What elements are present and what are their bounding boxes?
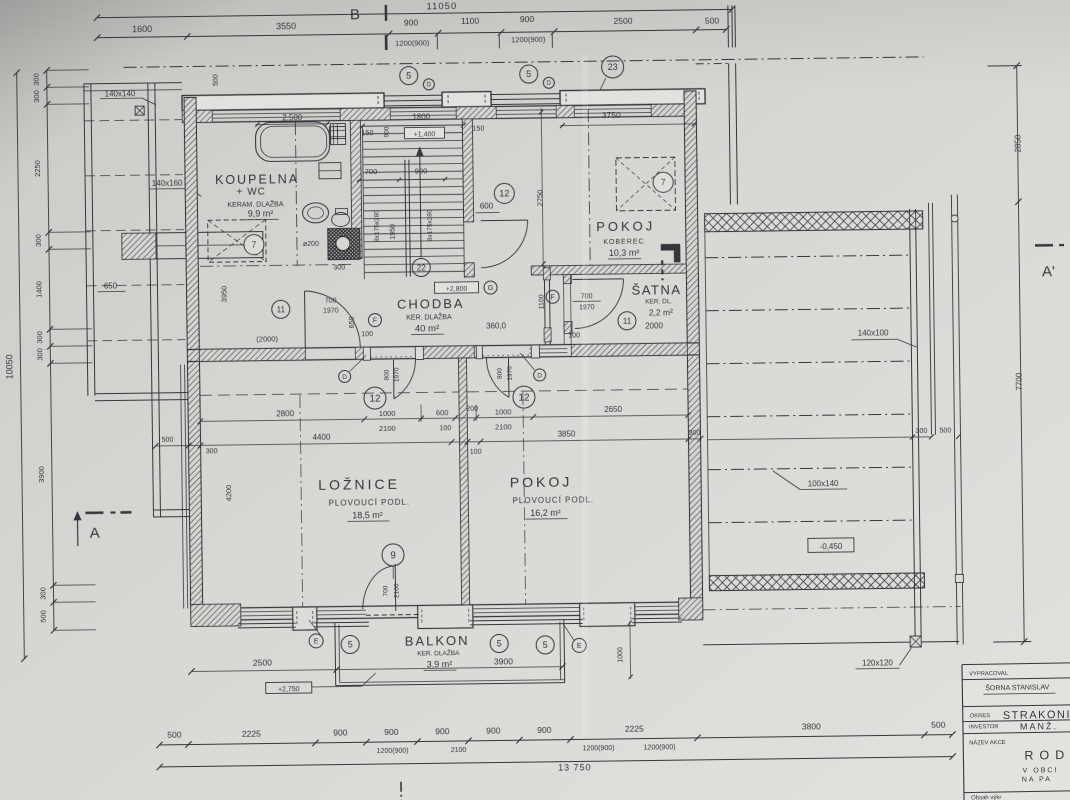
svg-text:500: 500	[162, 437, 174, 444]
svg-text:900: 900	[384, 727, 399, 737]
svg-text:+1,400: +1,400	[414, 131, 436, 138]
svg-text:16,2 m²: 16,2 m²	[530, 508, 561, 518]
svg-text:1100: 1100	[539, 294, 546, 309]
svg-text:11: 11	[623, 317, 632, 326]
svg-text:100: 100	[361, 331, 373, 338]
svg-text:300: 300	[689, 430, 701, 437]
svg-text:140x100: 140x100	[858, 328, 889, 337]
svg-text:STRAKONI: STRAKONI	[1003, 709, 1070, 722]
svg-text:9,9 m²: 9,9 m²	[248, 208, 274, 218]
svg-text:2850: 2850	[1014, 134, 1023, 152]
svg-text:22: 22	[417, 263, 427, 272]
svg-text:NA PA: NA PA	[1022, 776, 1052, 783]
svg-text:+2,800: +2,800	[446, 286, 468, 293]
svg-text:7: 7	[251, 240, 256, 250]
svg-text:KOBEREC: KOBEREC	[603, 239, 644, 247]
svg-text:2800: 2800	[276, 409, 294, 418]
svg-text:7: 7	[661, 178, 666, 188]
svg-text:B: B	[350, 6, 360, 23]
svg-text:1000: 1000	[379, 409, 396, 418]
svg-text:2225: 2225	[625, 724, 644, 734]
svg-text:700: 700	[325, 298, 337, 305]
svg-text:7700: 7700	[1015, 372, 1024, 390]
svg-text:NÁZEV AKCE: NÁZEV AKCE	[969, 739, 1006, 747]
svg-text:LOŽNICE: LOŽNICE	[318, 476, 400, 493]
svg-text:2,500: 2,500	[282, 113, 303, 122]
svg-text:500: 500	[213, 74, 220, 86]
svg-text:1970: 1970	[323, 308, 339, 315]
svg-text:11: 11	[277, 305, 286, 314]
svg-text:40 m²: 40 m²	[415, 323, 439, 334]
svg-text:4200: 4200	[224, 485, 233, 502]
svg-text:2100: 2100	[393, 583, 400, 598]
svg-text:300: 300	[35, 348, 44, 361]
svg-text:100: 100	[568, 332, 580, 339]
svg-text:3850: 3850	[557, 429, 575, 438]
svg-text:900: 900	[537, 725, 552, 735]
svg-text:2650: 2650	[604, 405, 622, 414]
svg-text:650: 650	[104, 281, 118, 290]
svg-text:900: 900	[520, 14, 535, 24]
svg-text:KOUPELNA: KOUPELNA	[215, 172, 299, 187]
svg-text:140x160: 140x160	[152, 179, 183, 188]
svg-text:100: 100	[470, 449, 482, 456]
svg-text:300: 300	[206, 448, 218, 455]
svg-text:V OBCI: V OBCI	[1023, 767, 1059, 775]
svg-text:MANŽ.: MANŽ.	[1020, 721, 1058, 732]
svg-text:G: G	[488, 285, 494, 292]
svg-text:1200(900): 1200(900)	[644, 744, 676, 751]
svg-text:5: 5	[406, 71, 411, 81]
svg-text:650: 650	[349, 316, 356, 328]
svg-text:2500: 2500	[253, 657, 272, 667]
svg-text:2750: 2750	[535, 190, 544, 207]
svg-text:Obsah výkr: Obsah výkr	[971, 795, 1001, 800]
svg-text:D: D	[537, 372, 542, 379]
svg-text:ŠATNA: ŠATNA	[632, 282, 682, 298]
svg-text:2250: 2250	[33, 160, 42, 177]
svg-text:500: 500	[39, 610, 48, 623]
svg-text:+2,750: +2,750	[278, 686, 300, 693]
svg-text:PLOVOUCÍ PODL.: PLOVOUCÍ PODL.	[512, 495, 594, 505]
svg-text:120x120: 120x120	[862, 658, 893, 667]
svg-text:3550: 3550	[276, 21, 296, 31]
svg-text:700: 700	[382, 585, 389, 596]
svg-text:700: 700	[365, 167, 378, 176]
svg-text:500: 500	[705, 16, 720, 26]
svg-text:F: F	[550, 294, 554, 301]
svg-text:1200(900): 1200(900)	[583, 745, 615, 752]
svg-text:1950: 1950	[390, 224, 397, 240]
svg-text:600: 600	[480, 202, 494, 211]
svg-text:ROD: ROD	[1024, 748, 1070, 763]
svg-text:ø200: ø200	[303, 241, 319, 248]
svg-text:1200(900): 1200(900)	[511, 35, 546, 44]
svg-text:5: 5	[348, 640, 353, 650]
svg-text:18,5 m²: 18,5 m²	[352, 510, 383, 520]
svg-text:300: 300	[32, 90, 41, 103]
svg-text:900: 900	[435, 726, 450, 736]
svg-text:F: F	[373, 318, 377, 325]
svg-text:900: 900	[415, 166, 428, 175]
svg-text:BALKON: BALKON	[405, 633, 470, 649]
svg-text:D: D	[427, 82, 432, 88]
svg-text:300: 300	[35, 331, 44, 344]
svg-text:800: 800	[497, 368, 504, 379]
svg-text:3900: 3900	[494, 656, 513, 666]
svg-text:3800: 3800	[802, 721, 821, 731]
svg-text:150: 150	[362, 130, 374, 137]
svg-text:INVESTOR: INVESTOR	[969, 724, 999, 730]
svg-text:800: 800	[384, 369, 391, 380]
svg-text:1200(900): 1200(900)	[377, 748, 409, 755]
svg-text:A: A	[90, 525, 100, 542]
svg-text:1000: 1000	[495, 407, 512, 416]
svg-text:13 750: 13 750	[558, 762, 592, 772]
svg-text:200: 200	[466, 406, 478, 413]
svg-text:10,3 m²: 10,3 m²	[609, 248, 640, 258]
svg-text:900: 900	[383, 126, 390, 137]
svg-text:OKRES: OKRES	[970, 713, 991, 719]
svg-text:5: 5	[543, 640, 548, 650]
svg-text:500: 500	[931, 720, 946, 730]
svg-text:23: 23	[608, 62, 618, 72]
svg-text:140x140: 140x140	[105, 89, 136, 98]
svg-text:300: 300	[916, 428, 928, 435]
svg-text:360,0: 360,0	[486, 321, 507, 330]
svg-text:D: D	[342, 374, 347, 381]
svg-text:1800: 1800	[412, 112, 430, 121]
svg-text:3750: 3750	[602, 110, 621, 120]
svg-text:300: 300	[333, 264, 345, 271]
svg-text:100: 100	[439, 425, 451, 432]
svg-text:POKOJ: POKOJ	[510, 474, 573, 491]
svg-text:8x175x280: 8x175x280	[426, 209, 433, 241]
svg-text:5: 5	[497, 639, 502, 649]
svg-text:3950: 3950	[219, 286, 228, 303]
svg-text:2,2 m²: 2,2 m²	[649, 307, 673, 317]
svg-text:9: 9	[390, 550, 396, 561]
svg-text:8x175x280: 8x175x280	[373, 210, 380, 242]
svg-text:POKOJ: POKOJ	[596, 218, 655, 234]
svg-text:A': A'	[1042, 263, 1055, 280]
svg-text:1100: 1100	[461, 16, 480, 26]
svg-text:10050: 10050	[4, 354, 14, 379]
svg-text:1970: 1970	[394, 367, 401, 382]
svg-text:5: 5	[526, 69, 531, 79]
svg-text:E: E	[314, 638, 319, 645]
svg-text:E: E	[577, 643, 582, 650]
svg-text:1970: 1970	[507, 366, 514, 381]
svg-text:11050: 11050	[426, 1, 457, 12]
svg-text:12: 12	[369, 394, 381, 405]
svg-text:500: 500	[167, 730, 182, 740]
svg-text:500: 500	[940, 428, 952, 435]
svg-text:2000: 2000	[645, 321, 663, 330]
svg-text:2225: 2225	[242, 729, 261, 739]
svg-text:1600: 1600	[132, 24, 152, 34]
svg-text:12: 12	[518, 393, 530, 404]
svg-text:900: 900	[404, 17, 419, 27]
svg-text:12: 12	[499, 189, 509, 199]
svg-text:4400: 4400	[313, 433, 331, 442]
svg-text:VYPRACOVAL: VYPRACOVAL	[969, 671, 1009, 678]
svg-text:300: 300	[32, 73, 41, 86]
svg-text:2100: 2100	[495, 422, 512, 431]
svg-text:2100: 2100	[451, 747, 467, 754]
svg-text:900: 900	[486, 725, 501, 735]
svg-text:600: 600	[436, 408, 449, 417]
svg-text:CHODBA: CHODBA	[397, 296, 465, 312]
svg-text:1200(900): 1200(900)	[395, 38, 430, 47]
svg-text:2100: 2100	[379, 424, 396, 433]
svg-text:150: 150	[473, 126, 485, 133]
svg-text:PLOVOUCÍ PODL.: PLOVOUCÍ PODL.	[328, 498, 410, 508]
svg-text:2500: 2500	[614, 16, 633, 26]
svg-text:KER. DL.: KER. DL.	[645, 298, 672, 305]
svg-text:1000: 1000	[617, 647, 624, 663]
svg-text:900: 900	[333, 727, 348, 737]
svg-text:(2000): (2000)	[256, 334, 278, 343]
svg-text:1400: 1400	[34, 281, 43, 298]
svg-text:D: D	[547, 81, 552, 87]
svg-text:300: 300	[34, 234, 43, 247]
svg-text:300: 300	[38, 587, 47, 600]
svg-text:+ WC: + WC	[237, 187, 266, 198]
svg-text:3900: 3900	[37, 466, 46, 483]
svg-text:100x140: 100x140	[808, 479, 839, 488]
svg-text:-0,450: -0,450	[820, 542, 843, 551]
